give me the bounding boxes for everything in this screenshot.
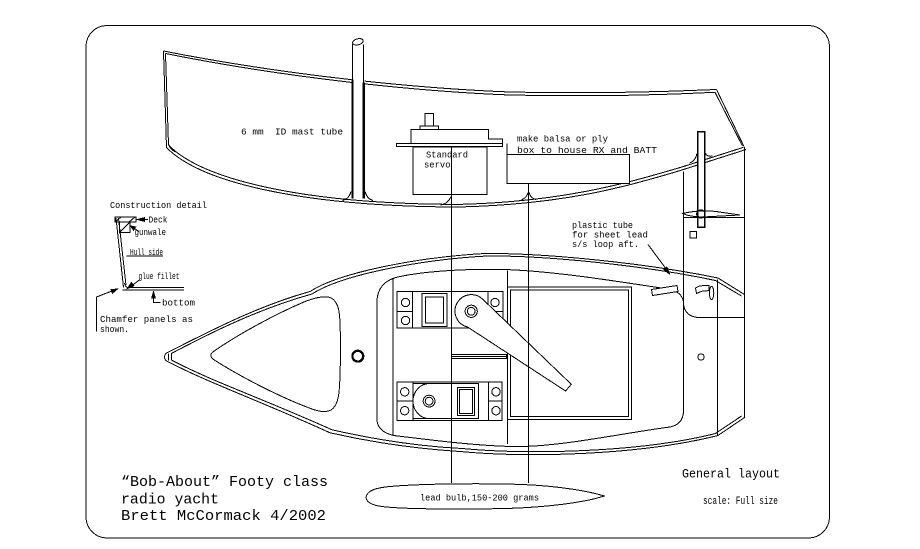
svg-text:box to house RX and BATT: box to house RX and BATT	[517, 145, 657, 156]
svg-text:scale: Full size: scale: Full size	[703, 496, 778, 508]
svg-text:General layout: General layout	[682, 467, 780, 482]
svg-text:6 mm ID mast tube: 6 mm ID mast tube	[241, 127, 343, 138]
svg-text:make balsa or ply: make balsa or ply	[517, 134, 608, 145]
svg-text:“Bob-About” Footy class: “Bob-About” Footy class	[121, 474, 328, 491]
svg-text:Hull side: Hull side	[130, 247, 163, 258]
svg-text:servo: servo	[424, 160, 451, 171]
svg-text:s/s loop aft.: s/s loop aft.	[572, 239, 639, 250]
svg-text:glue fillet: glue fillet	[139, 271, 180, 282]
svg-text:Deck: Deck	[149, 215, 168, 226]
svg-text:bottom: bottom	[162, 298, 195, 309]
svg-text:Brett McCormack 4/2002: Brett McCormack 4/2002	[121, 508, 326, 525]
svg-text:lead bulb,150-200 grams: lead bulb,150-200 grams	[420, 493, 539, 504]
svg-text:gunwale: gunwale	[135, 227, 167, 238]
svg-text:radio yacht: radio yacht	[121, 492, 219, 509]
svg-text:shown.: shown.	[100, 324, 129, 335]
svg-text:Construction detail: Construction detail	[110, 200, 207, 211]
